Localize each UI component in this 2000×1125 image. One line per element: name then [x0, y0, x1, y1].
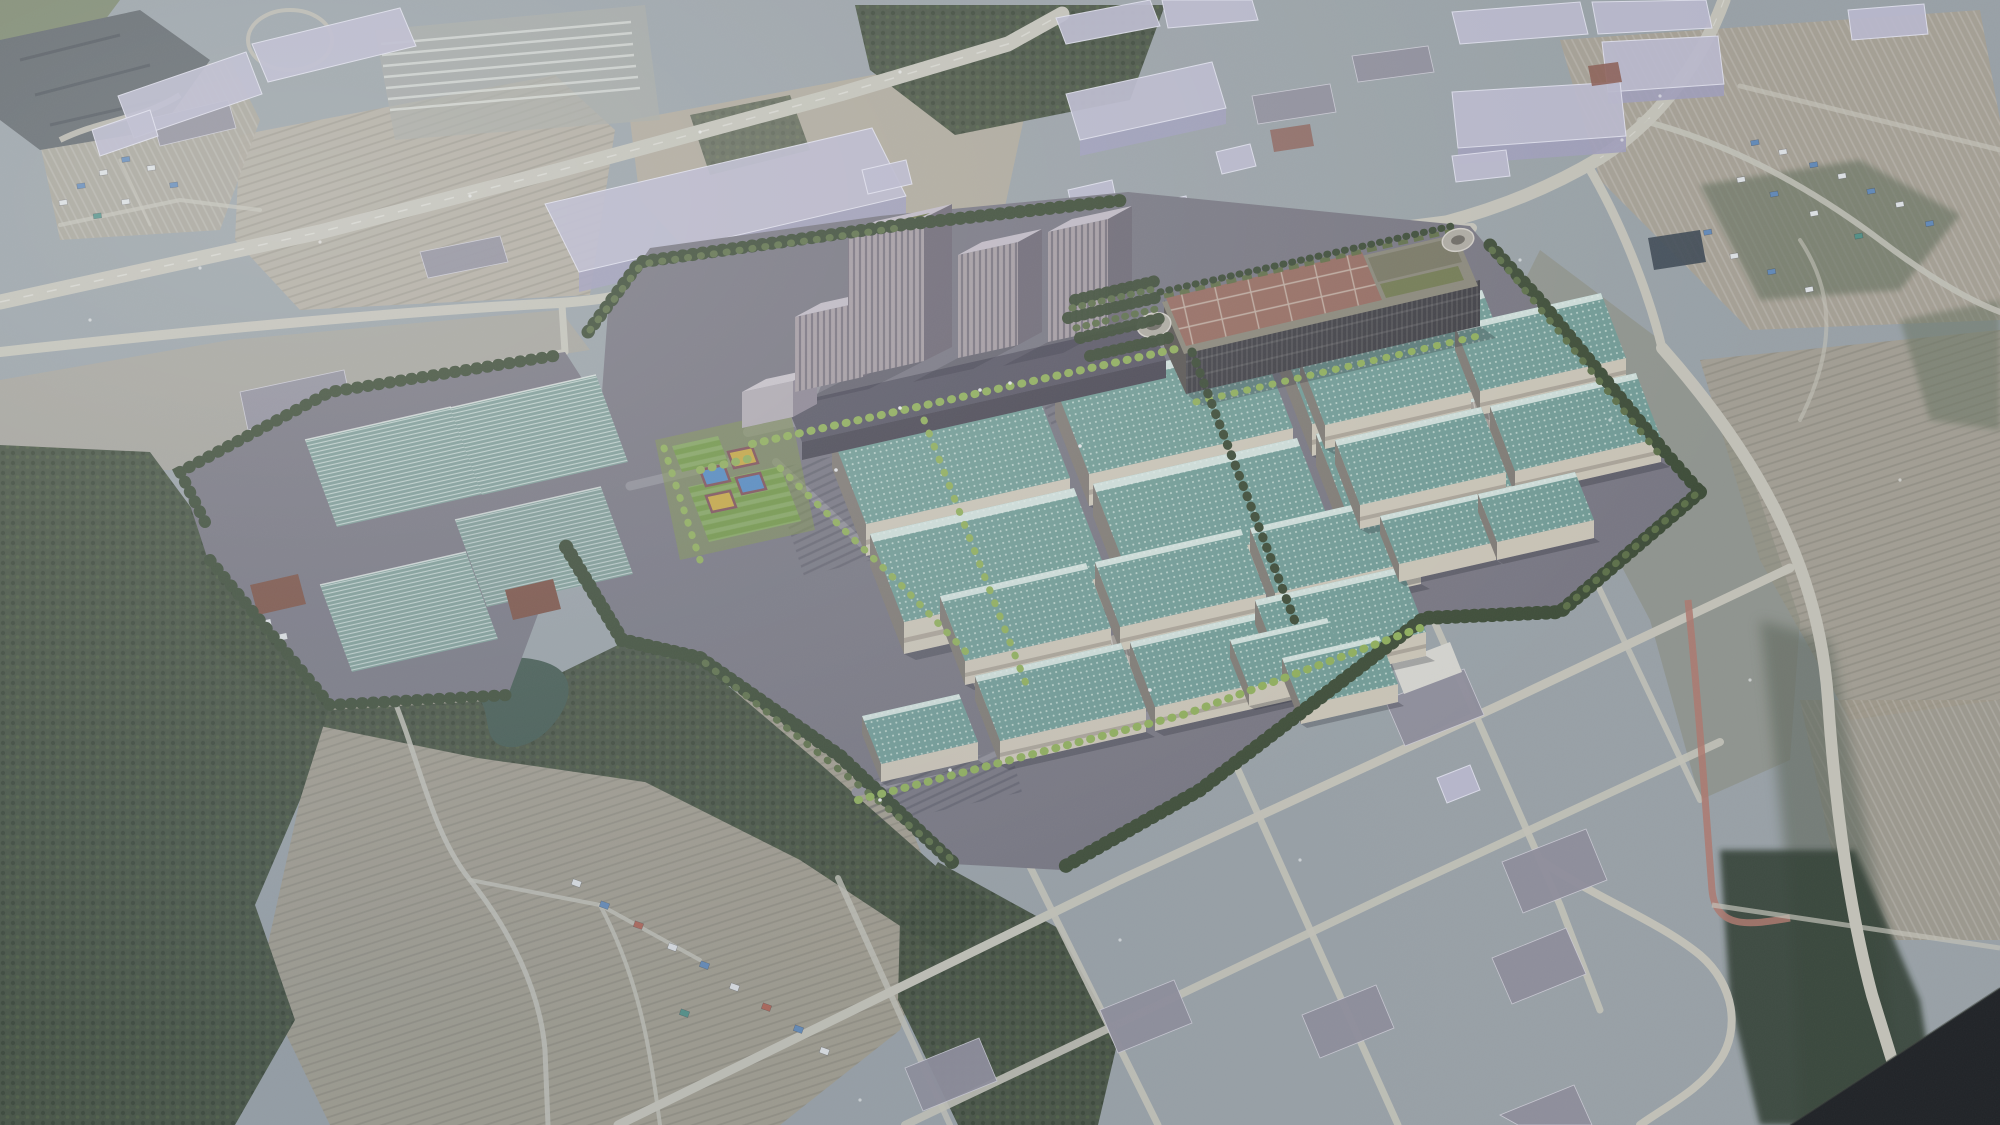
- aerial-render-image: [0, 0, 2000, 1125]
- atmosphere-overlays: [0, 0, 2000, 1125]
